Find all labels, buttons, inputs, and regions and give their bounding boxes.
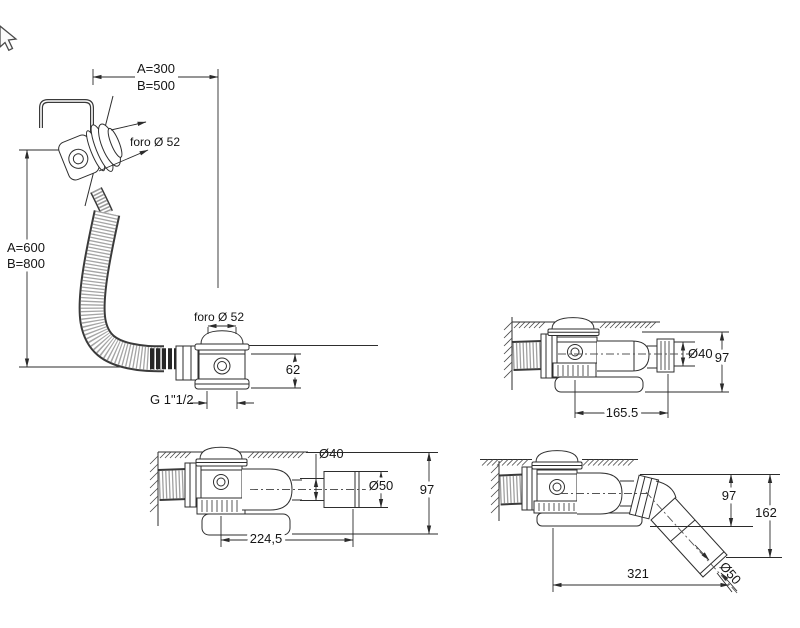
drawing-canvas: A=300 B=500 A=600 B=800 bbox=[0, 0, 800, 628]
technical-drawing-page: A=300 B=500 A=600 B=800 bbox=[0, 0, 800, 628]
drain-height-dimension: 62 bbox=[251, 354, 301, 388]
main-overflow-drain-drawing: A=300 B=500 A=600 B=800 bbox=[7, 61, 378, 409]
outlet-assembly bbox=[242, 469, 372, 510]
end-diameter-label: Ø50 bbox=[717, 559, 744, 587]
drain-ribbed-nut bbox=[534, 501, 579, 513]
drain-ribbed-nut bbox=[197, 498, 245, 514]
outlet-thread-label: G 1"1/2 bbox=[150, 392, 194, 407]
waste-drain bbox=[195, 331, 378, 389]
body-height-label: 97 bbox=[722, 488, 736, 503]
flexible-hose bbox=[92, 213, 178, 359]
outlet-diameter-dimension: Ø40 bbox=[674, 342, 713, 366]
drain-hole-label: foro Ø 52 bbox=[194, 310, 244, 324]
angled-outlet-drawing: 97 162 321 Ø50 bbox=[480, 451, 782, 594]
outlet-assembly bbox=[560, 473, 738, 594]
overflow-hole-label: foro Ø 52 bbox=[130, 135, 180, 149]
length-label: 321 bbox=[627, 566, 649, 581]
outlet-diameter-label: Ø40 bbox=[688, 346, 713, 361]
end-diameter-label: Ø50 bbox=[369, 478, 394, 493]
drain-cap bbox=[201, 331, 243, 344]
outlet-body bbox=[597, 341, 649, 371]
flexible-hose bbox=[500, 489, 524, 490]
outlet-thread-dimension: G 1"1/2 bbox=[150, 391, 254, 409]
drain-trap-body bbox=[555, 377, 643, 392]
dim-b500-label: B=500 bbox=[137, 78, 175, 93]
drain-cap bbox=[536, 451, 578, 462]
drain-trap-body bbox=[537, 513, 642, 526]
angled-center-line bbox=[646, 492, 738, 594]
flexible-hose bbox=[159, 484, 187, 485]
length-label: 165.5 bbox=[606, 405, 639, 420]
dim-a300-label: A=300 bbox=[137, 61, 175, 76]
outlet-nut bbox=[629, 475, 658, 519]
height-dimension: 97 bbox=[292, 453, 438, 535]
height-dimension: 97 bbox=[642, 332, 729, 392]
drain-cap bbox=[552, 318, 594, 329]
total-height-dimension: 162 bbox=[726, 475, 782, 558]
drain-height-label: 62 bbox=[286, 362, 300, 377]
height-label: 97 bbox=[715, 350, 729, 365]
dim-b800-label: B=800 bbox=[7, 256, 45, 271]
flexible-hose bbox=[513, 355, 542, 356]
dim-a600-label: A=600 bbox=[7, 240, 45, 255]
length-label: 224,5 bbox=[250, 531, 283, 546]
angled-pipe bbox=[651, 498, 727, 577]
drain-ribbed-nut bbox=[553, 363, 596, 377]
overflow-tail bbox=[96, 190, 107, 213]
hose-nut bbox=[176, 346, 198, 380]
outlet-nut bbox=[657, 339, 674, 372]
drain-cap bbox=[200, 447, 242, 459]
cursor-arrow-icon bbox=[0, 26, 16, 50]
hanger-hook bbox=[41, 101, 92, 134]
height-label: 97 bbox=[420, 482, 434, 497]
total-height-label: 162 bbox=[755, 505, 777, 520]
horizontal-outlet-drawing: Ø40 97 165.5 bbox=[504, 317, 729, 420]
pipe-diameter-label: Ø40 bbox=[319, 446, 344, 461]
extended-outlet-drawing: Ø40 Ø50 97 224,5 bbox=[150, 446, 438, 547]
